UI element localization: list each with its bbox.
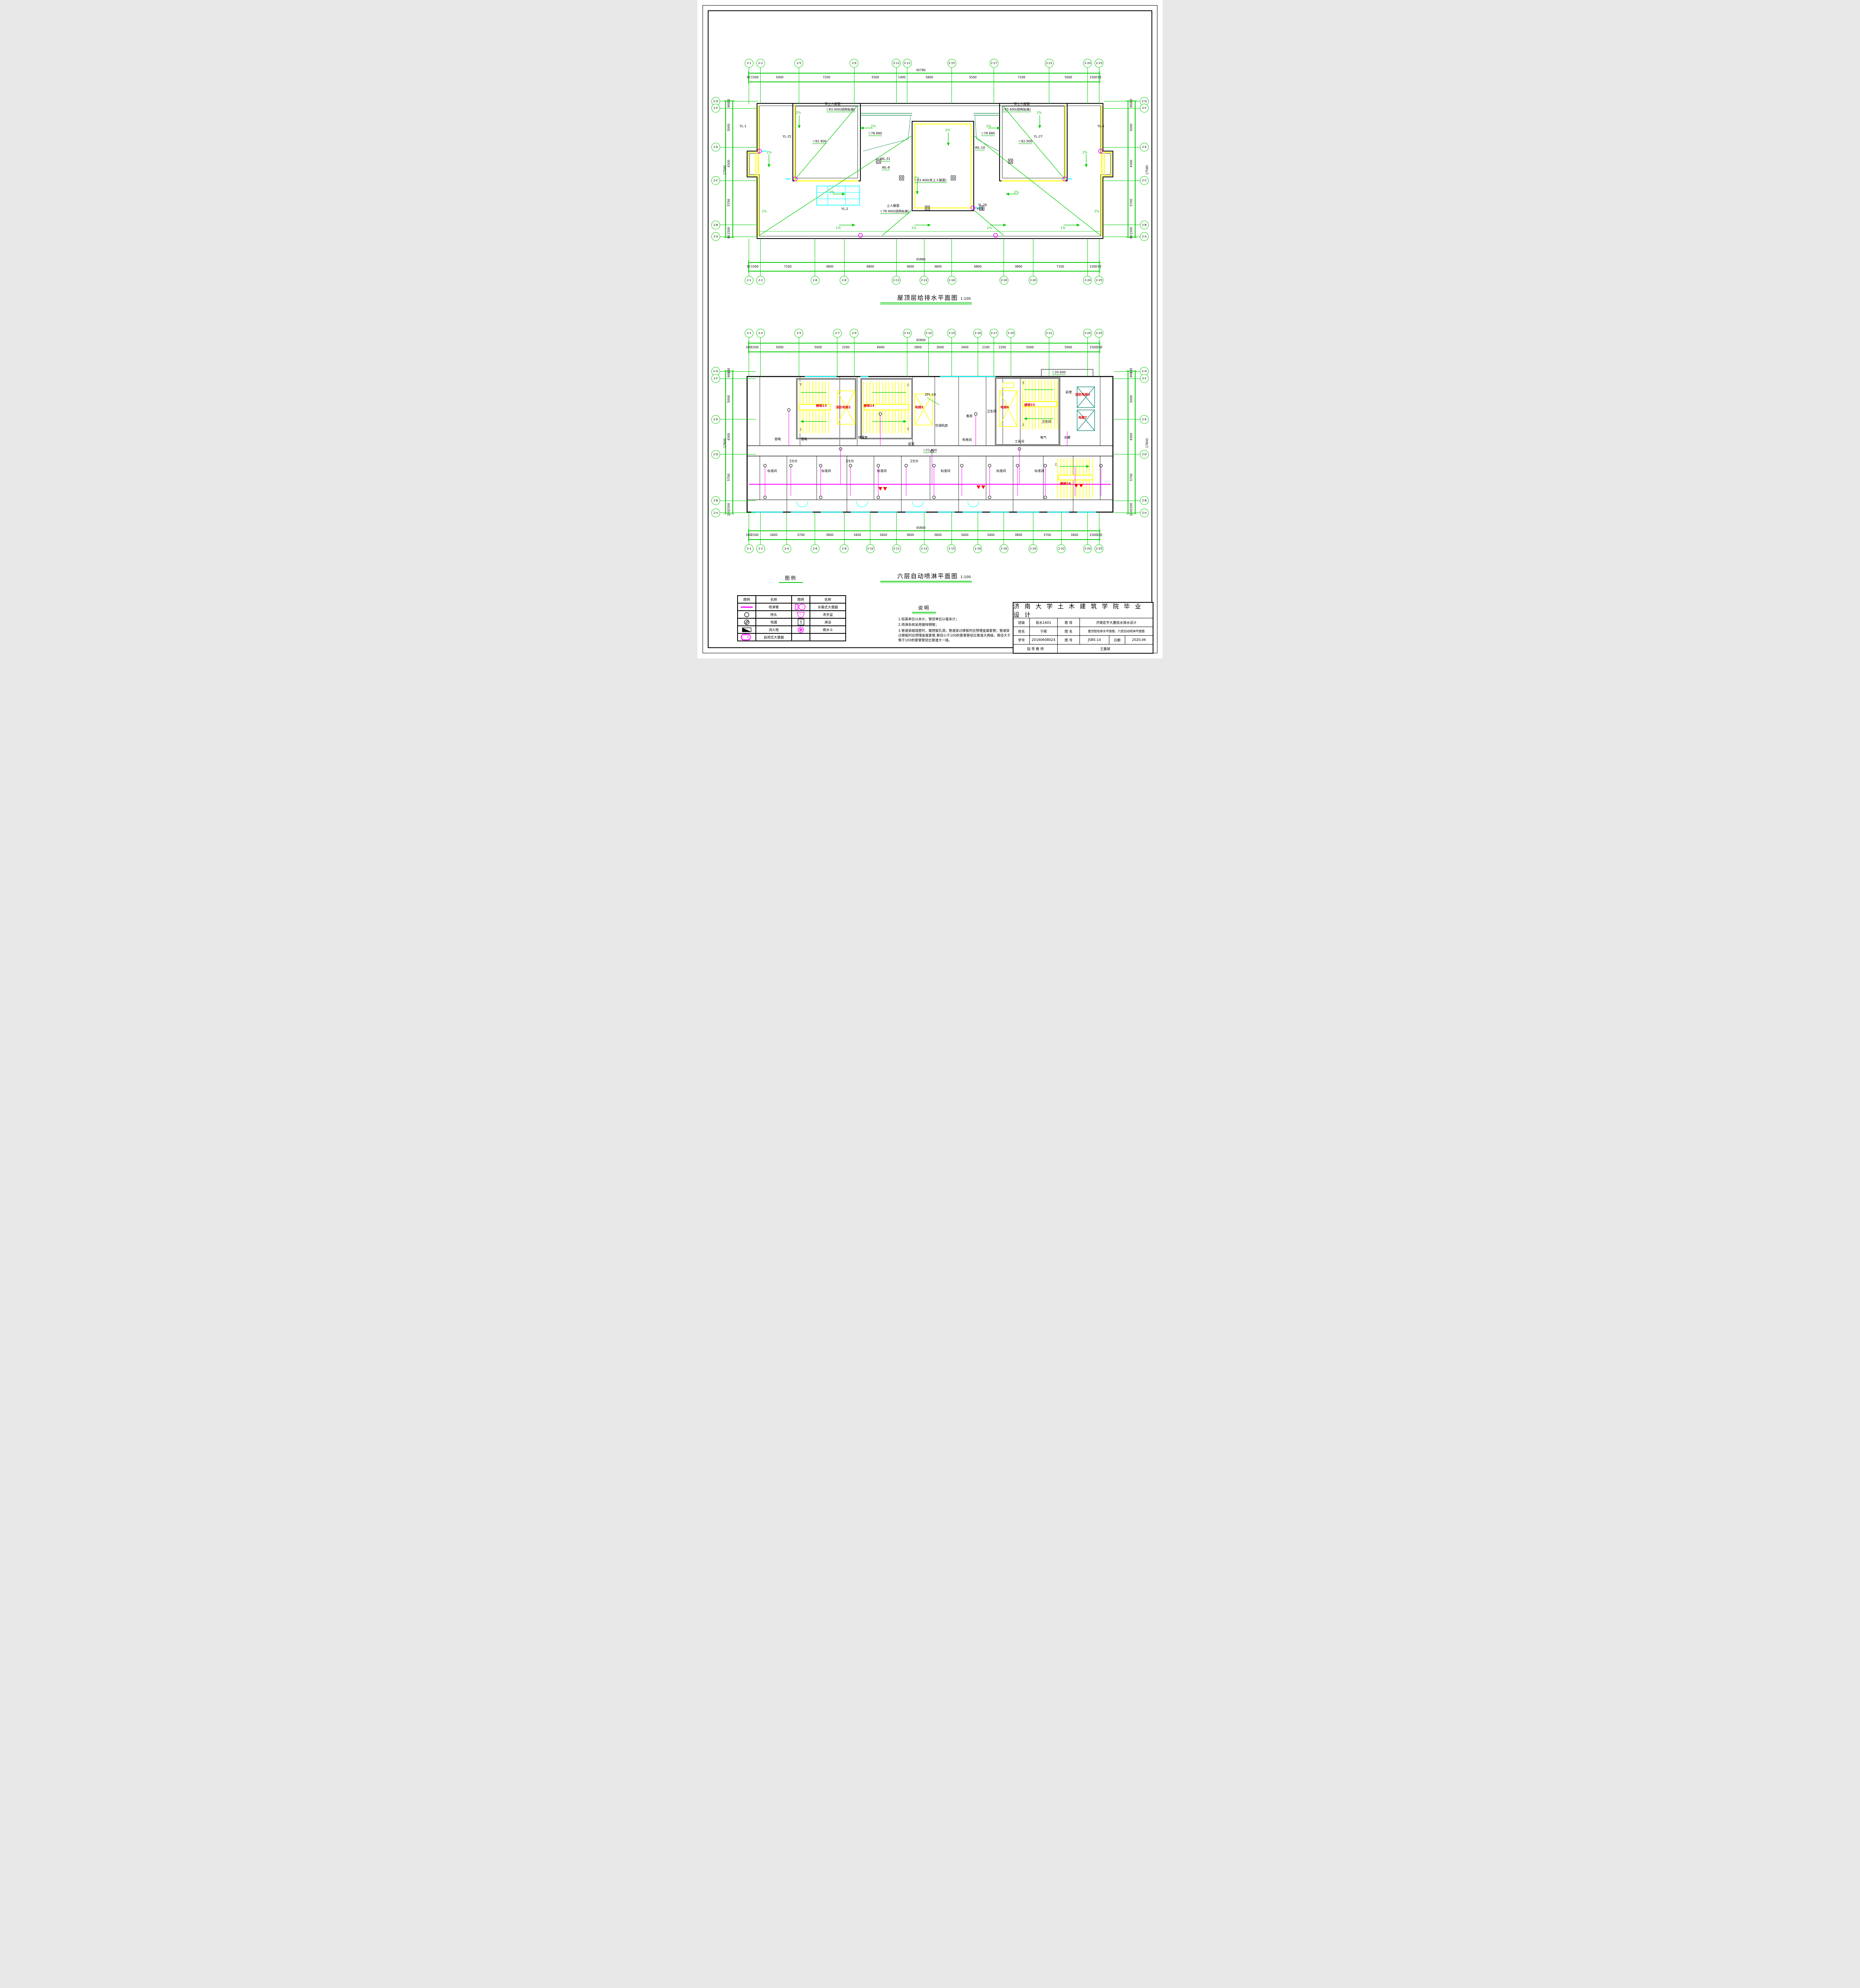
dimension-tick: [854, 341, 854, 353]
axis-bubble: 2-18: [1000, 276, 1008, 285]
dimension-value: 1400: [896, 76, 907, 79]
axis-bubble: 2-F: [711, 374, 720, 383]
dimension-tick: [1126, 147, 1137, 148]
dimension-tick: [837, 341, 837, 353]
dimension-tick: [1126, 514, 1137, 514]
dimension-value: 3700: [795, 533, 806, 537]
dimension-tick: [724, 101, 734, 101]
notes-underline: [912, 612, 936, 613]
dimension-tick: [1033, 260, 1033, 273]
roof-parapet-inner: [749, 106, 1111, 236]
dimension-tick: [1033, 529, 1033, 541]
dimension-value: 3800: [824, 533, 835, 537]
axis-bubble: 2-24: [1083, 59, 1092, 68]
axis-bubble: 2-1: [745, 329, 753, 338]
axis-bubble: 2-10: [866, 544, 875, 553]
dimension-value: 900: [727, 99, 731, 110]
dimension-tick: [994, 71, 994, 83]
dimension-tick: [1126, 225, 1137, 225]
dimension-value: 1500: [749, 265, 760, 268]
dimension-tick: [870, 529, 870, 541]
axis-bubble: 2-E: [1140, 143, 1149, 151]
legend-table: 图例 名称 图例 名称 喷淋管 水箱式大便器 喷头 洗手盆 地漏 淋浴 消火栓 …: [737, 595, 846, 641]
dimension-tick: [1126, 513, 1137, 513]
roof-plan-title: 屋顶层给排水平面图1:100: [868, 293, 1000, 305]
dimension-tick: [951, 529, 952, 541]
dimension-value: 1500: [1088, 346, 1099, 349]
dimension-total: 45780: [916, 68, 926, 72]
ridge-lines: [759, 105, 1101, 235]
dimension-line: [748, 262, 1100, 263]
name-value: 于辉: [1029, 627, 1057, 635]
dimension-tick: [1126, 237, 1137, 237]
axis-bubble: 2-1: [745, 276, 753, 285]
dimension-tick: [724, 513, 734, 513]
dimension-value: 4300: [1130, 158, 1133, 169]
legend-name: 喷淋管: [756, 603, 792, 611]
dimension-tick: [1087, 260, 1088, 273]
roof-vents: [876, 159, 1013, 210]
axis-bubble: 2-C: [711, 176, 720, 185]
dimension-tick: [760, 260, 761, 273]
dimension-tick: [978, 529, 978, 541]
dimension-line: [1135, 371, 1136, 514]
note-item: 3.管道穿越墙壁时，需预留孔洞，管道穿过楼板时应预埋金属套管；管道穿过楼板时应预…: [898, 629, 1013, 643]
dimension-value: 5000: [774, 76, 785, 79]
axis-bubble: 2-E: [711, 415, 720, 424]
dimension-value: 1500: [727, 501, 731, 512]
dimension-line: [748, 271, 1100, 272]
axis-bubble: 2-12: [903, 329, 912, 338]
axis-bubble: 2-5: [794, 59, 803, 68]
dimension-tick: [724, 454, 734, 454]
dimension-tick: [844, 529, 845, 541]
dimension-value: 3600: [932, 265, 944, 268]
dimension-value: 4300: [1130, 431, 1133, 442]
axis-bubble: 2-17: [990, 59, 998, 68]
fire-hydrant-icon: [738, 626, 756, 633]
legend-name: 水箱式大便器: [810, 603, 846, 611]
dimension-value: 3400: [878, 533, 889, 537]
dimension-tick: [1099, 260, 1099, 273]
axis-bubble: 2-2: [756, 544, 765, 553]
dimension-tick: [724, 225, 734, 225]
dimension-value: 5700: [1130, 472, 1133, 483]
dimension-tick: [951, 341, 952, 353]
stair-16: [1057, 458, 1094, 498]
roof-drainage-plan: [741, 91, 1119, 247]
axis-bubble: 2-19: [1006, 329, 1015, 338]
dimension-total: 17580: [1146, 163, 1149, 175]
dimension-value: 1500: [1088, 76, 1099, 79]
subject-value: 济南宏宇大厦给水排水设计: [1079, 618, 1153, 627]
title-underline: [880, 303, 972, 303]
note-item: 1.标高单位以米计，管径单位以毫米计；: [898, 617, 1013, 622]
dimension-tick: [924, 260, 924, 273]
dimension-tick: [760, 341, 761, 353]
dimension-tick: [724, 379, 734, 379]
axis-bubble: 2-5: [794, 329, 803, 338]
title-block-row: 学号 20160608024 图 号 JSBS-14 日期 2020.06: [1013, 635, 1153, 644]
dimension-tick: [924, 529, 924, 541]
dimension-value: 6800: [865, 265, 876, 268]
dimension-tick: [1126, 101, 1137, 101]
elevator-7: [1077, 410, 1095, 431]
notes-list: 1.标高单位以米计，管径单位以毫米计； 2.喷淋系统采用镀锌钢管； 3.管道穿越…: [898, 617, 1013, 644]
dimension-tick: [1099, 529, 1099, 541]
dimension-tick: [1100, 71, 1100, 83]
axis-bubble: 2-17: [990, 329, 998, 338]
dimension-value: 100: [1130, 365, 1133, 377]
floor-plan-title: 六层自动喷淋平面图1:100: [868, 572, 1000, 583]
dimension-value: 90: [1094, 265, 1105, 268]
notes-heading-text: 说明: [918, 605, 930, 611]
dimension-tick: [749, 71, 749, 83]
axis-bubble: 2-F: [711, 104, 720, 113]
axis-bubble: 2-14: [924, 329, 933, 338]
dimension-tick: [1126, 181, 1137, 181]
dimension-tick: [748, 260, 749, 273]
legend-underline: [779, 582, 803, 583]
dimension-tick: [854, 71, 854, 83]
student-id-value: 20160608024: [1029, 636, 1057, 644]
dimension-value: 1500: [1088, 265, 1099, 268]
axis-bubble: 2-11: [892, 276, 901, 285]
wash-basin-icon: [792, 611, 810, 618]
axis-bubble: 2-F: [1140, 374, 1149, 383]
dimension-value: 5700: [727, 197, 731, 208]
school-title: 济 南 大 学 土 木 建 筑 学 院 毕 业 设 计: [1013, 603, 1153, 618]
dimension-total: 17580: [723, 163, 727, 175]
axis-bubble: 2-18: [1000, 544, 1008, 553]
axis-bubble: 2-8: [840, 544, 848, 553]
roof-equipment: [817, 186, 860, 205]
dimension-value: 5000: [1130, 122, 1133, 133]
dimension-value: 5000: [813, 346, 824, 349]
axis-bubble: 2-6: [811, 276, 819, 285]
title-underline2: [880, 304, 972, 305]
dimension-value: 100: [743, 346, 754, 349]
dimension-tick: [907, 71, 907, 83]
dimension-value: 100: [1130, 507, 1133, 518]
dimension-tick: [724, 419, 734, 419]
title-block-row: 姓名 于辉 图 名 屋顶层给排水平面图、六层自动喷淋平面图: [1013, 627, 1153, 635]
hydrant-markers: [878, 484, 1083, 491]
note-item: 2.喷淋系统采用镀锌钢管；: [898, 623, 1013, 627]
dimension-value: 5000: [1024, 346, 1035, 349]
sprinkler-head-icon: [738, 611, 756, 618]
balcony-doors: [797, 501, 979, 507]
dimension-value: 90: [1130, 95, 1133, 106]
dimension-line: [1128, 101, 1128, 237]
axis-bubble: 2-1: [745, 59, 753, 68]
axis-bubble: 2-16: [947, 276, 956, 285]
roof-access-box: [1041, 369, 1093, 377]
advisor-value: 王嘉斌: [1057, 645, 1153, 653]
dimension-value: 5000: [727, 122, 731, 133]
dimension-tick: [749, 529, 749, 541]
dimension-tick: [749, 260, 749, 273]
gutter-lines: [860, 113, 1000, 115]
axis-bubble: 2-G: [1140, 367, 1149, 376]
elevator-6: [1000, 383, 1017, 427]
dimension-line: [748, 351, 1100, 352]
dimension-tick: [1126, 101, 1137, 101]
legend-name: 消火栓: [756, 626, 792, 633]
floor-title-scale: 1:100: [961, 575, 971, 579]
axis-bubble: 2-A: [1140, 232, 1149, 241]
dimension-tick: [1126, 419, 1137, 419]
drawing-sheet: 2%2%2%2%2%2%2%2%2%2%1%1%1%1%1%1%YL-1YL-2…: [697, 0, 1163, 658]
axis-bubble: 2-20: [1029, 276, 1037, 285]
dimension-tick: [1011, 341, 1011, 353]
dimension-total: 17600: [723, 436, 727, 448]
dimension-value: 7200: [821, 76, 832, 79]
stair-14: [863, 382, 910, 433]
dimension-tick: [1049, 71, 1049, 83]
sprinkler-pipe-icon: [738, 603, 756, 611]
axis-bubble: 2-22: [1057, 544, 1066, 553]
dimension-value: 1500: [727, 225, 731, 236]
corridor-walls: [747, 446, 1113, 456]
dimension-tick: [928, 341, 929, 353]
dimension-tick: [786, 529, 787, 541]
drawing-no-value: JSBS-14: [1079, 636, 1109, 644]
axis-bubble: 2-A: [711, 509, 720, 517]
dimension-total: 17600: [1146, 436, 1149, 448]
zpl-leader: [927, 398, 939, 405]
class-label: 班级: [1013, 618, 1029, 627]
date-label: 日期: [1109, 636, 1125, 644]
dimension-value: 1500: [749, 76, 760, 79]
axis-bubble: 2-1: [745, 544, 753, 553]
dimension-value: 1500: [1130, 501, 1133, 512]
drawing-no-label: 图 号: [1057, 636, 1079, 644]
axis-bubble: 2-6: [811, 544, 819, 553]
legend-name: 淋浴: [810, 618, 846, 626]
dimension-value: 90: [1130, 231, 1133, 243]
dimension-tick: [815, 529, 815, 541]
dimension-value: 3800: [824, 265, 835, 268]
notes-heading: 说明: [912, 604, 936, 614]
legend-empty: [810, 633, 846, 641]
dimension-value: 2100: [980, 346, 991, 349]
legend-name: 洗手盆: [810, 611, 846, 618]
dimension-tick: [1087, 341, 1088, 353]
dimension-tick: [1126, 237, 1137, 238]
dimension-line: [748, 82, 1100, 82]
axis-bubble: 2-16: [973, 544, 982, 553]
axis-bubble: 2-4: [782, 544, 791, 553]
drawing-name-label: 图 名: [1057, 627, 1079, 635]
dimension-tick: [844, 260, 845, 273]
legend-header-symbol2: 图例: [792, 596, 810, 603]
dimension-value: 3400: [1069, 533, 1080, 537]
axis-bubble: 2-13: [920, 276, 928, 285]
legend-header-name2: 名称: [810, 596, 846, 603]
floor-title-text: 六层自动喷淋平面图: [897, 573, 958, 580]
legend-name: 自闭式大便器: [756, 633, 792, 641]
dimension-tick: [748, 529, 749, 541]
title-block-row: 指 导 教 师 王嘉斌: [1013, 644, 1153, 653]
dimension-value: 5000: [1063, 76, 1074, 79]
axis-bubble: 2-G: [711, 367, 720, 376]
dimension-value: 5000: [774, 346, 785, 349]
dimension-tick: [724, 237, 734, 237]
dimension-line: [748, 73, 1100, 74]
axis-bubble: 2-24: [1083, 329, 1092, 338]
dimension-value: 2200: [840, 346, 851, 349]
axis-bubble: 2-A: [1140, 509, 1149, 517]
dimension-tick: [815, 260, 815, 273]
dimension-tick: [724, 514, 734, 514]
dimension-line: [748, 539, 1100, 540]
dimension-value: 2800: [913, 346, 924, 349]
dimension-total: 45800: [916, 526, 926, 530]
axis-bubble: 2-21: [1045, 329, 1054, 338]
axis-bubble: 2-24: [1083, 276, 1092, 285]
dimension-tick: [724, 181, 734, 181]
dimension-value: 6800: [972, 265, 983, 268]
dimension-tick: [1099, 71, 1099, 83]
roof-title-text: 屋顶层给排水平面图: [897, 294, 958, 301]
dimension-tick: [1004, 529, 1004, 541]
axis-bubble: 2-15: [947, 329, 956, 338]
dimension-value: 90: [743, 76, 754, 79]
dimension-value: 90: [727, 231, 731, 243]
dimension-value: 100: [743, 533, 754, 537]
legend-name: 喷头: [756, 611, 792, 618]
dimension-value: 3000: [935, 346, 946, 349]
axis-bubble: 2-D: [1140, 450, 1149, 459]
dimension-tick: [760, 529, 761, 541]
dimension-tick: [994, 341, 994, 353]
date-value: 2020.06: [1125, 636, 1153, 644]
dimension-tick: [1099, 341, 1099, 353]
rain-hopper-icon: [792, 626, 810, 633]
dimension-value: 3400: [959, 346, 970, 349]
axis-bubble: 2-12: [903, 59, 912, 68]
title-block: 济 南 大 学 土 木 建 筑 学 院 毕 业 设 计 班级 给水1601 题 …: [1013, 602, 1153, 654]
axis-bubble: 2-25: [1095, 59, 1103, 68]
fire-elevator-2: [837, 391, 855, 424]
dimension-value: 7100: [782, 265, 793, 268]
axis-bubble: 2-21: [1045, 59, 1054, 68]
dimension-tick: [1126, 501, 1137, 501]
dimension-tick: [799, 71, 799, 83]
dimension-value: 3400: [852, 533, 863, 537]
dimension-value: 900: [1130, 369, 1133, 381]
dimension-value: 900: [727, 369, 731, 381]
axis-bubble: 2-15: [947, 544, 956, 553]
dimension-value: 5000: [727, 393, 731, 404]
dimension-value: 5500: [870, 76, 881, 79]
dimension-value: 1500: [1130, 225, 1133, 236]
dimension-line: [1135, 101, 1136, 237]
dimension-tick: [907, 341, 907, 353]
dimension-tick: [1126, 371, 1137, 372]
dimension-value: 3400: [985, 533, 996, 537]
axis-bubble: 2-24: [1083, 544, 1092, 553]
dimension-tick: [1126, 371, 1137, 371]
stair-13: [798, 382, 831, 433]
subject-label: 题 目: [1057, 618, 1079, 627]
axis-bubble: 2-B: [1140, 496, 1149, 505]
dimension-tick: [896, 71, 897, 83]
axis-bubble: 2-F: [1140, 104, 1149, 113]
dimension-value: 2200: [997, 346, 1008, 349]
legend-name: 地漏: [756, 618, 792, 626]
dimension-value: 90: [1094, 76, 1105, 79]
slope-arrows: [769, 115, 1086, 225]
dimension-value: 90: [743, 265, 754, 268]
floor-drain-icon: [738, 618, 756, 626]
core-walls: [797, 378, 1059, 445]
axis-bubble: 2-25: [1095, 544, 1103, 553]
dimension-line: [732, 101, 733, 237]
dimension-value: 4300: [727, 431, 731, 442]
elevator-5: [915, 394, 932, 425]
dimension-tick: [1049, 341, 1049, 353]
dimension-tick: [749, 341, 749, 353]
dimension-value: 5000: [1063, 346, 1074, 349]
dimension-value: 5800: [924, 76, 935, 79]
axis-bubble: 2-2: [756, 276, 765, 285]
dimension-tick: [896, 529, 897, 541]
dimension-tick: [748, 71, 749, 83]
dimension-tick: [724, 371, 734, 371]
legend-heading-text: 图例: [785, 575, 797, 581]
axis-bubble: 2-16: [973, 329, 982, 338]
dimension-value: 7200: [1016, 76, 1027, 79]
dimension-tick: [724, 101, 734, 101]
dimension-tick: [748, 341, 749, 353]
roof-block-center: [912, 121, 974, 211]
fire-elevator-3: [1077, 387, 1095, 408]
dimension-line: [748, 530, 1100, 531]
dimension-tick: [978, 341, 978, 353]
legend-header-name: 名称: [756, 596, 792, 603]
axis-bubble: 2-D: [711, 450, 720, 459]
dimension-value: 3600: [905, 533, 916, 537]
dimension-value: 1500: [1088, 533, 1099, 537]
axis-bubble: 2-9: [850, 329, 858, 338]
dimension-value: 900: [1130, 99, 1133, 110]
axis-bubble: 2-20: [1029, 544, 1037, 553]
dimension-line: [725, 371, 726, 514]
legend-empty: [792, 633, 810, 641]
title-underline: [880, 581, 972, 582]
dimension-tick: [1061, 529, 1062, 541]
student-id-label: 学号: [1013, 636, 1029, 644]
legend-grid: 图例 名称 图例 名称 喷淋管 水箱式大便器 喷头 洗手盆 地漏 淋浴 消火栓 …: [738, 596, 846, 641]
dimension-tick: [724, 237, 734, 238]
axis-bubble: 2-B: [1140, 221, 1149, 229]
dimension-value: 5500: [967, 76, 979, 79]
axis-bubble: 2-E: [711, 143, 720, 151]
roof-title-scale: 1:100: [961, 297, 971, 301]
stair-15: [1021, 380, 1058, 429]
dimension-value: 1500: [749, 533, 760, 537]
dimension-tick: [1087, 71, 1088, 83]
dimension-tick: [1087, 529, 1088, 541]
legend-header-symbol: 图例: [738, 596, 756, 603]
dimension-tick: [951, 260, 952, 273]
dimension-value: 3600: [932, 533, 944, 537]
dimension-tick: [799, 341, 799, 353]
dimension-tick: [1004, 260, 1004, 273]
axis-bubble: 2-11: [892, 544, 901, 553]
